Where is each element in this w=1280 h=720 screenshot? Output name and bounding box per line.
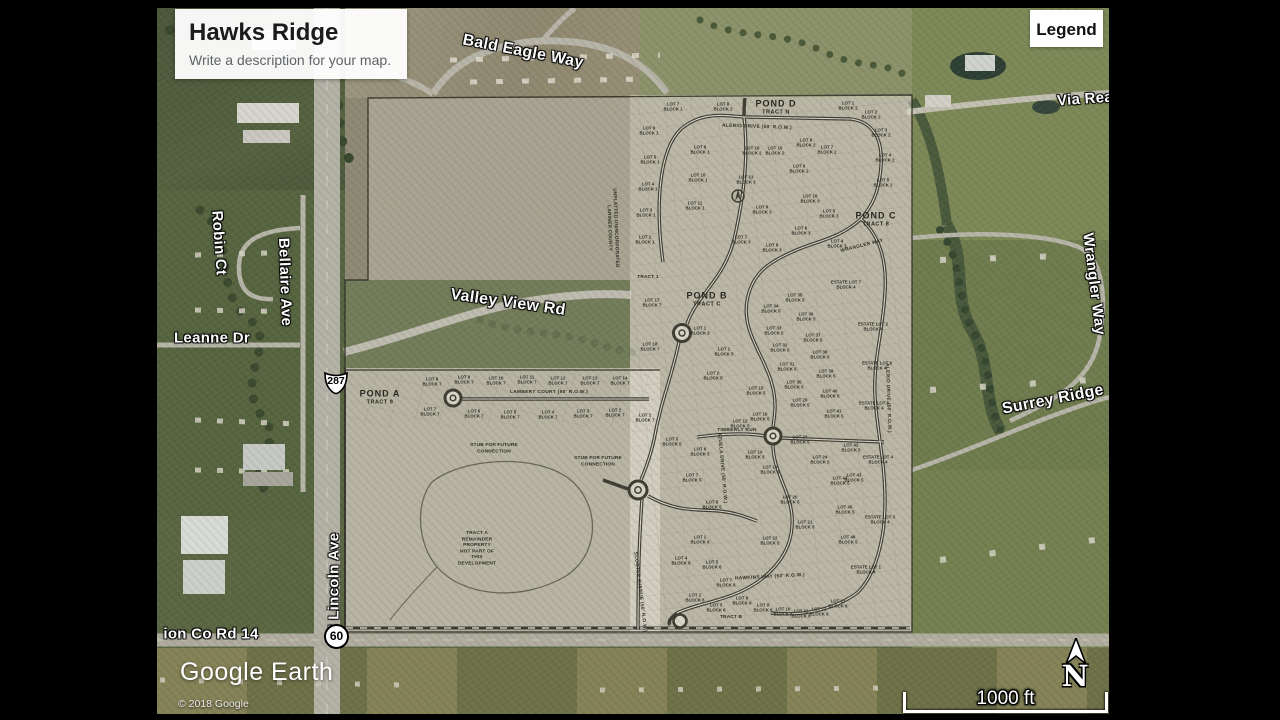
lot-label: LOT 34 BLOCK 5 <box>761 304 780 314</box>
plat-street-label: ALERIO DRIVE (50' R.O.W.) <box>722 123 792 130</box>
lot-label: LOT 11 BLOCK 1 <box>685 201 704 211</box>
lot-label: LOT 29 BLOCK 5 <box>790 398 809 408</box>
plat-note: STUB FOR FUTURE CONNECTION <box>574 456 622 468</box>
lot-label: LOT 5 BLOCK 7 <box>500 410 519 420</box>
lot-label: LOT 7 BLOCK 1 <box>663 102 682 112</box>
lot-label: LOT 16 BLOCK 5 <box>750 412 769 422</box>
plat-note: TRACT A REMAINDER PROPERTY NOT PART OF T… <box>458 531 496 567</box>
route-shield-60: 60 <box>324 624 349 649</box>
plat-note: UNPLATTED UNINCORPORATED LARIMER COUNTY <box>605 188 620 268</box>
lot-label: LOT 40 BLOCK 5 <box>820 389 839 399</box>
plat-note: TRACT B <box>720 615 742 621</box>
lot-label: LOT 17 BLOCK 7 <box>642 298 661 308</box>
lot-label: LOT 7 BLOCK 2 <box>817 145 836 155</box>
lot-label: LOT 38 BLOCK 5 <box>810 350 829 360</box>
letterbox-right <box>1109 0 1280 720</box>
pond-label: POND BTRACT C <box>686 291 727 308</box>
lot-label: LOT 8 BLOCK 3 <box>762 243 781 253</box>
copyright-text: © 2018 Google <box>178 698 249 710</box>
plat-note: STUB FOR FUTURE CONNECTION <box>470 443 518 455</box>
plat-street-label: HAWKINS WAY (50' R.O.W.) <box>735 573 805 581</box>
scale-bar: 1000 ft <box>903 692 1108 713</box>
lot-label: LOT 8 BLOCK 2 <box>713 102 732 112</box>
lot-label: LOT 4 BLOCK 6 <box>671 556 690 566</box>
lot-label: LOT 6 BLOCK 7 <box>464 409 483 419</box>
compass-north-label: N <box>1062 659 1089 693</box>
pond-name: POND D <box>755 99 796 109</box>
lot-label: LOT 39 BLOCK 5 <box>816 369 835 379</box>
lot-label: LOT 4 BLOCK 2 <box>875 153 894 163</box>
legend-button[interactable]: Legend <box>1030 10 1103 47</box>
lot-label: LOT 15 BLOCK 2 <box>765 146 784 156</box>
lot-label: LOT 13 BLOCK 7 <box>580 376 599 386</box>
lot-label: LOT 33 BLOCK 5 <box>764 326 783 336</box>
map-title: Hawks Ridge <box>189 19 393 47</box>
tract-name: TRACT N <box>755 110 796 116</box>
lot-label: LOT 3 BLOCK 1 <box>636 208 655 218</box>
lot-label: LOT 6 BLOCK 2 <box>796 138 815 148</box>
lot-label: LOT 7 BLOCK 3 <box>731 235 750 245</box>
lot-label: LOT 9 BLOCK 6 <box>753 603 772 613</box>
lot-label: LOT 7 BLOCK 7 <box>420 407 439 417</box>
lot-label: LOT 6 BLOCK 1 <box>639 126 658 136</box>
lot-label: LOT 23 BLOCK 5 <box>790 435 809 445</box>
lot-label: LOT 4 BLOCK 3 <box>827 239 846 249</box>
lot-label: LOT 10 BLOCK 5 <box>745 450 764 460</box>
lot-label: LOT 32 BLOCK 5 <box>770 343 789 353</box>
lot-label: LOT 10 BLOCK 6 <box>773 607 792 617</box>
lot-label: LOT 9 BLOCK 7 <box>454 375 473 385</box>
lot-label: LOT 2 BLOCK 7 <box>605 408 624 418</box>
lot-label: LOT 2 BLOCK 6 <box>685 593 704 603</box>
lot-label: ESTATE LOT 6 BLOCK 4 <box>862 361 892 371</box>
lot-label: LOT 3 BLOCK 2 <box>871 128 890 138</box>
lot-label: LOT 2 BLOCK 2 <box>861 110 880 120</box>
lot-label: LOT 9 BLOCK 3 <box>752 205 771 215</box>
lot-label: LOT 35 BLOCK 5 <box>785 293 804 303</box>
lot-label: ESTATE LOT 7 BLOCK 4 <box>831 280 861 290</box>
lot-label: LOT 11 BLOCK 6 <box>791 609 810 619</box>
lot-label: LOT 22 BLOCK 5 <box>760 536 779 546</box>
lot-label: LOT 14 BLOCK 7 <box>610 376 629 386</box>
lot-label: LOT 37 BLOCK 5 <box>803 333 822 343</box>
tract-name: TRACT 8 <box>855 222 896 228</box>
lot-label: LOT 7 BLOCK 5 <box>682 473 701 483</box>
lot-label: LOT 1 BLOCK 7 <box>635 413 654 423</box>
lot-label: ESTATE LOT 1 BLOCK 4 <box>851 565 881 575</box>
lot-label: LOT 6 BLOCK 5 <box>690 447 709 457</box>
plat-street-label: SCOOTER AVENUE (50' R.O.W.) <box>633 552 648 633</box>
letterbox-bottom <box>0 714 1280 720</box>
lot-label: LOT 2 BLOCK 5 <box>703 371 722 381</box>
lot-label: LOT 5 BLOCK 6 <box>702 560 721 570</box>
lot-label: ESTATE LOT 5 BLOCK 4 <box>859 401 889 411</box>
google-earth-logo: Google Earth <box>180 658 333 687</box>
lot-label: LOT 12 BLOCK 5 <box>730 419 749 429</box>
google-earth-viewport[interactable]: Bald Eagle WayVia ReaRobin CtBellaire Av… <box>0 0 1280 720</box>
lot-label: LOT 8 BLOCK 6 <box>732 596 751 606</box>
plat-street-label: LAMBERT COURT (50' R.O.W.) <box>510 390 588 395</box>
letterbox-left <box>0 0 157 720</box>
lot-label: LOT 1 BLOCK 6 <box>690 535 709 545</box>
map-title-card[interactable]: Hawks Ridge Write a description for your… <box>175 9 407 79</box>
lot-label: LOT 36 BLOCK 5 <box>796 312 815 322</box>
lot-label: LOT 21 BLOCK 5 <box>795 520 814 530</box>
lot-label: LOT 15 BLOCK 5 <box>746 386 765 396</box>
lot-label: LOT 10 BLOCK 7 <box>486 376 505 386</box>
lot-label: LOT 7 BLOCK 6 <box>716 578 735 588</box>
lot-label: LOT 3 BLOCK 6 <box>706 603 725 613</box>
lot-label: LOT 5 BLOCK 2 <box>873 178 892 188</box>
lot-label: LOT 1 BLOCK 2 <box>838 101 857 111</box>
lot-label: LOT 13 BLOCK 3 <box>736 175 755 185</box>
lot-label: LOT 30 BLOCK 5 <box>784 380 803 390</box>
pond-name: POND A <box>360 389 401 399</box>
pond-label: POND ATRACT 9 <box>360 389 401 406</box>
lot-label: LOT 31 BLOCK 5 <box>777 362 796 372</box>
pond-name: POND C <box>855 211 896 221</box>
tract-name: TRACT 9 <box>360 400 401 406</box>
route-shield-287: 287 <box>321 370 351 397</box>
lot-label: LOT 8 BLOCK 7 <box>422 377 441 387</box>
lot-label: LOT 45 BLOCK 5 <box>835 505 854 515</box>
lot-label: LOT 46 BLOCK 5 <box>838 535 857 545</box>
lot-label: LOT 4 BLOCK 1 <box>638 182 657 192</box>
lot-label: LOT 12 BLOCK 6 <box>809 607 828 617</box>
lot-label: LOT 41 BLOCK 5 <box>824 409 843 419</box>
plat-street-label: ALERIO DRIVE (50' R.O.W.) <box>884 363 891 433</box>
tract-name: TRACT C <box>686 302 727 308</box>
lot-label: LOT 2 BLOCK 1 <box>635 235 654 245</box>
lot-label: ESTATE LOT 2 BLOCK 4 <box>858 322 888 332</box>
plat-label-layer: POND DTRACT NPOND CTRACT 8POND BTRACT CP… <box>0 0 1280 720</box>
lot-label: LOT 9 BLOCK 1 <box>690 145 709 155</box>
lot-label: LOT 5 BLOCK 1 <box>640 155 659 165</box>
pond-label: POND DTRACT N <box>755 99 796 116</box>
lot-label: LOT 19 BLOCK 5 <box>760 465 779 475</box>
lot-label: LOT 3 BLOCK 7 <box>573 409 592 419</box>
lot-label: LOT 1 BLOCK 5 <box>714 347 733 357</box>
lot-label: LOT 5 BLOCK 3 <box>819 209 838 219</box>
lot-label: LOT 11 BLOCK 7 <box>517 375 536 385</box>
lot-label: LOT 4 BLOCK 7 <box>538 410 557 420</box>
lot-label: LOT 8 BLOCK 5 <box>702 500 721 510</box>
plat-street-label: AZUELA DRIVE (50' R.O.W.) <box>717 432 728 503</box>
lot-label: LOT 10 BLOCK 3 <box>800 194 819 204</box>
lot-label: LOT 12 BLOCK 7 <box>548 376 567 386</box>
letterbox-top <box>0 0 1280 8</box>
lot-label: LOT 9 BLOCK 2 <box>789 164 808 174</box>
pond-label: POND CTRACT 8 <box>855 211 896 228</box>
plat-note: TRACT 1 <box>637 275 658 281</box>
lot-label: LOT 13 BLOCK 6 <box>828 599 847 609</box>
lot-label: LOT 10 BLOCK 1 <box>688 173 707 183</box>
lot-label: LOT 42 BLOCK 5 <box>841 443 860 453</box>
lot-label: LOT 6 BLOCK 3 <box>791 226 810 236</box>
lot-label: LOT 1 BLOCK 3 <box>690 326 709 336</box>
lot-label: LOT 18 BLOCK 7 <box>640 342 659 352</box>
lot-label: ESTATE LOT 4 BLOCK 4 <box>863 455 893 465</box>
lot-label: LOT 20 BLOCK 5 <box>780 495 799 505</box>
pond-name: POND B <box>686 291 727 301</box>
lot-label: LOT 16 BLOCK 2 <box>742 146 761 156</box>
lot-label: LOT 43 BLOCK 5 <box>844 473 863 483</box>
lot-label: LOT 24 BLOCK 5 <box>810 455 829 465</box>
map-description-placeholder[interactable]: Write a description for your map. <box>189 52 393 68</box>
lot-label: ESTATE LOT 3 BLOCK 4 <box>865 515 895 525</box>
lot-label: LOT 5 BLOCK 5 <box>662 437 681 447</box>
